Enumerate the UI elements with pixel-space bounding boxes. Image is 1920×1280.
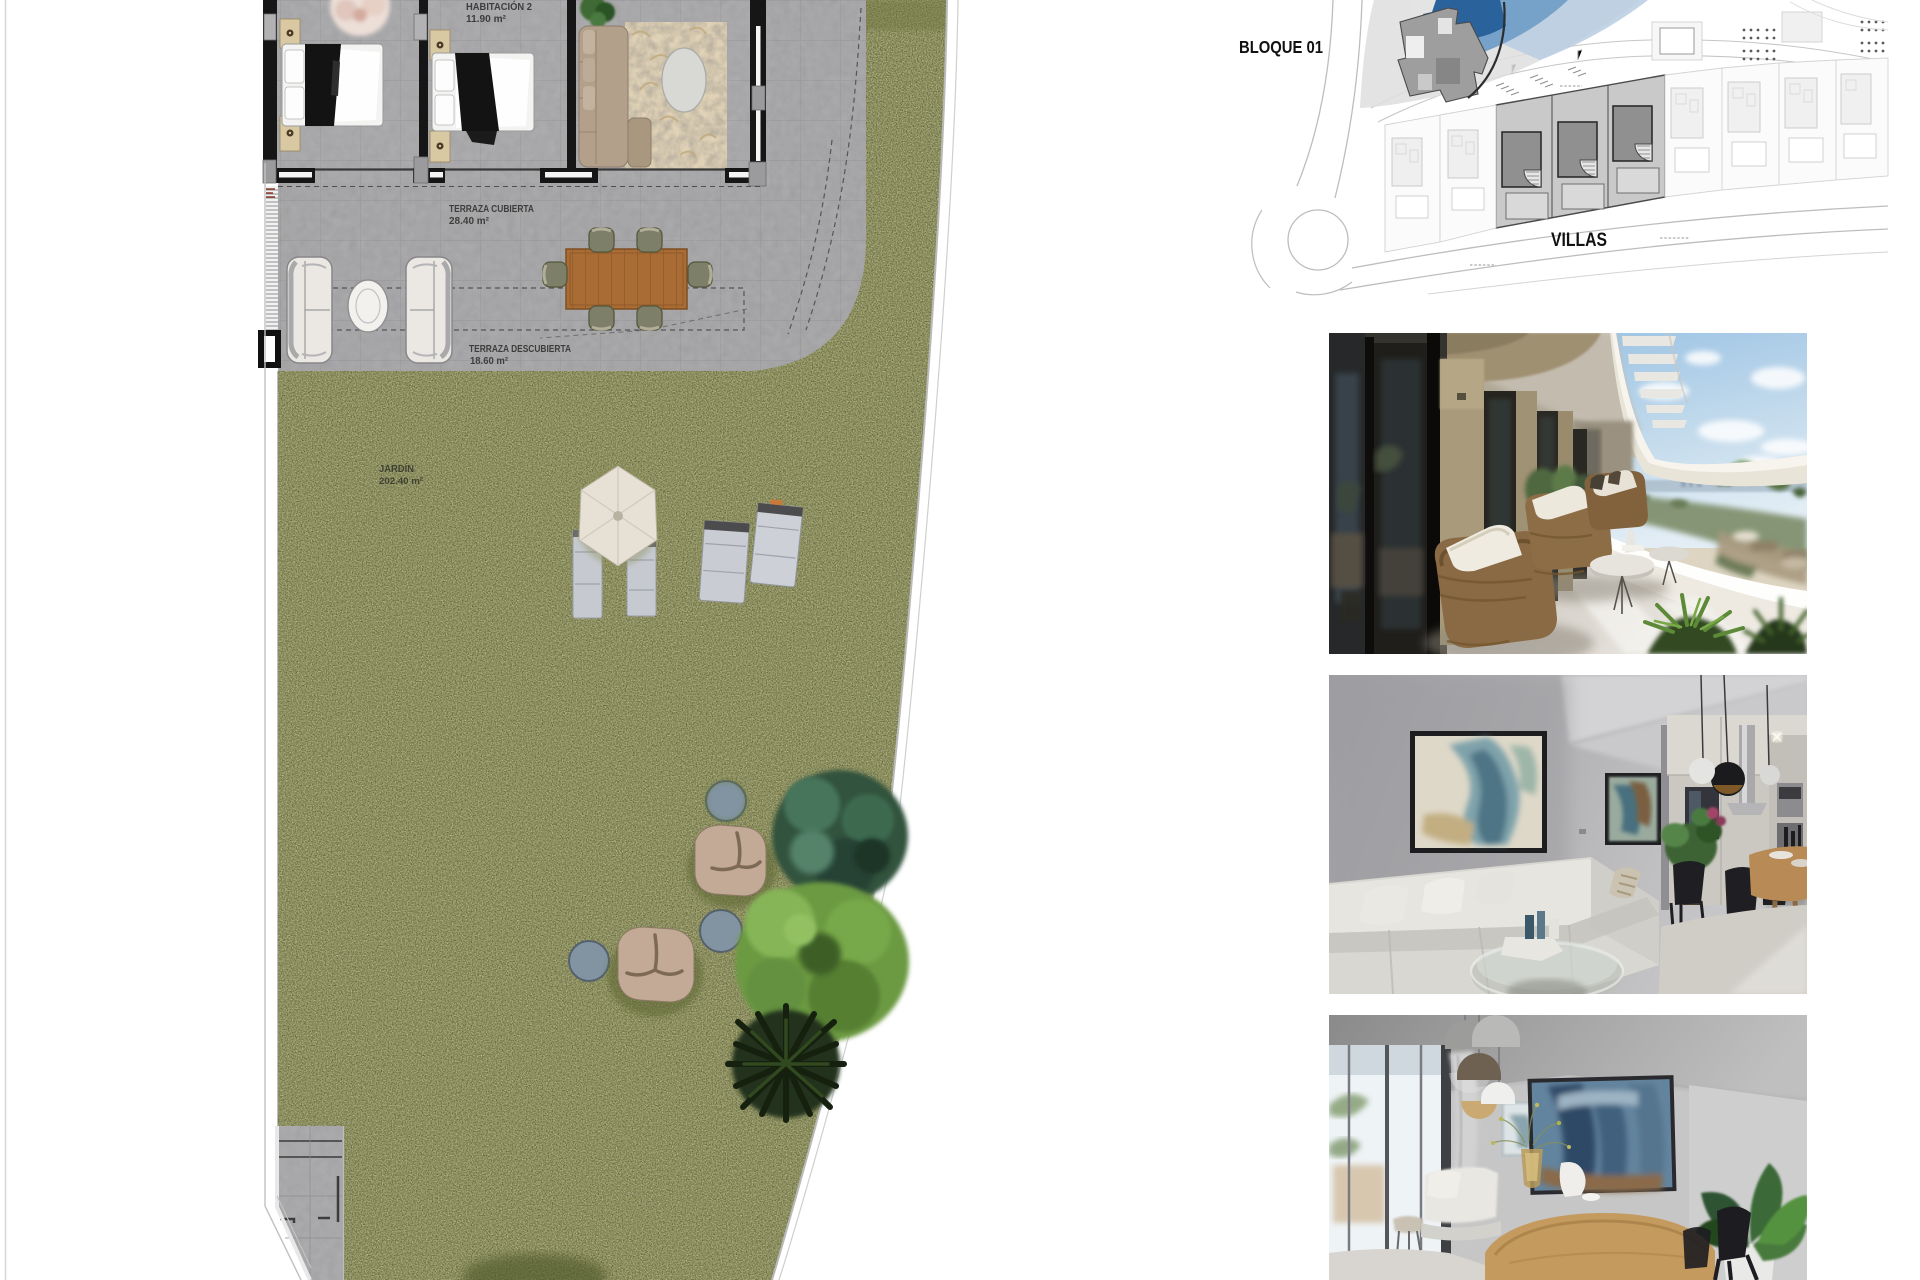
svg-text:TERRAZA CUBIERTA: TERRAZA CUBIERTA <box>449 203 534 215</box>
svg-text:VILLAS: VILLAS <box>1551 230 1607 251</box>
svg-text:11.90 m²: 11.90 m² <box>466 14 507 25</box>
svg-text:HABITACIÓN 2: HABITACIÓN 2 <box>466 0 532 13</box>
svg-text:202.40 m²: 202.40 m² <box>379 476 423 487</box>
svg-text:BLOQUE 01: BLOQUE 01 <box>1239 37 1323 57</box>
svg-text:18.60 m²: 18.60 m² <box>470 356 509 367</box>
svg-text:TERRAZA DESCUBIERTA: TERRAZA DESCUBIERTA <box>469 343 571 355</box>
svg-text:JARDÍN: JARDÍN <box>379 462 414 475</box>
svg-text:28.40 m²: 28.40 m² <box>449 216 490 227</box>
